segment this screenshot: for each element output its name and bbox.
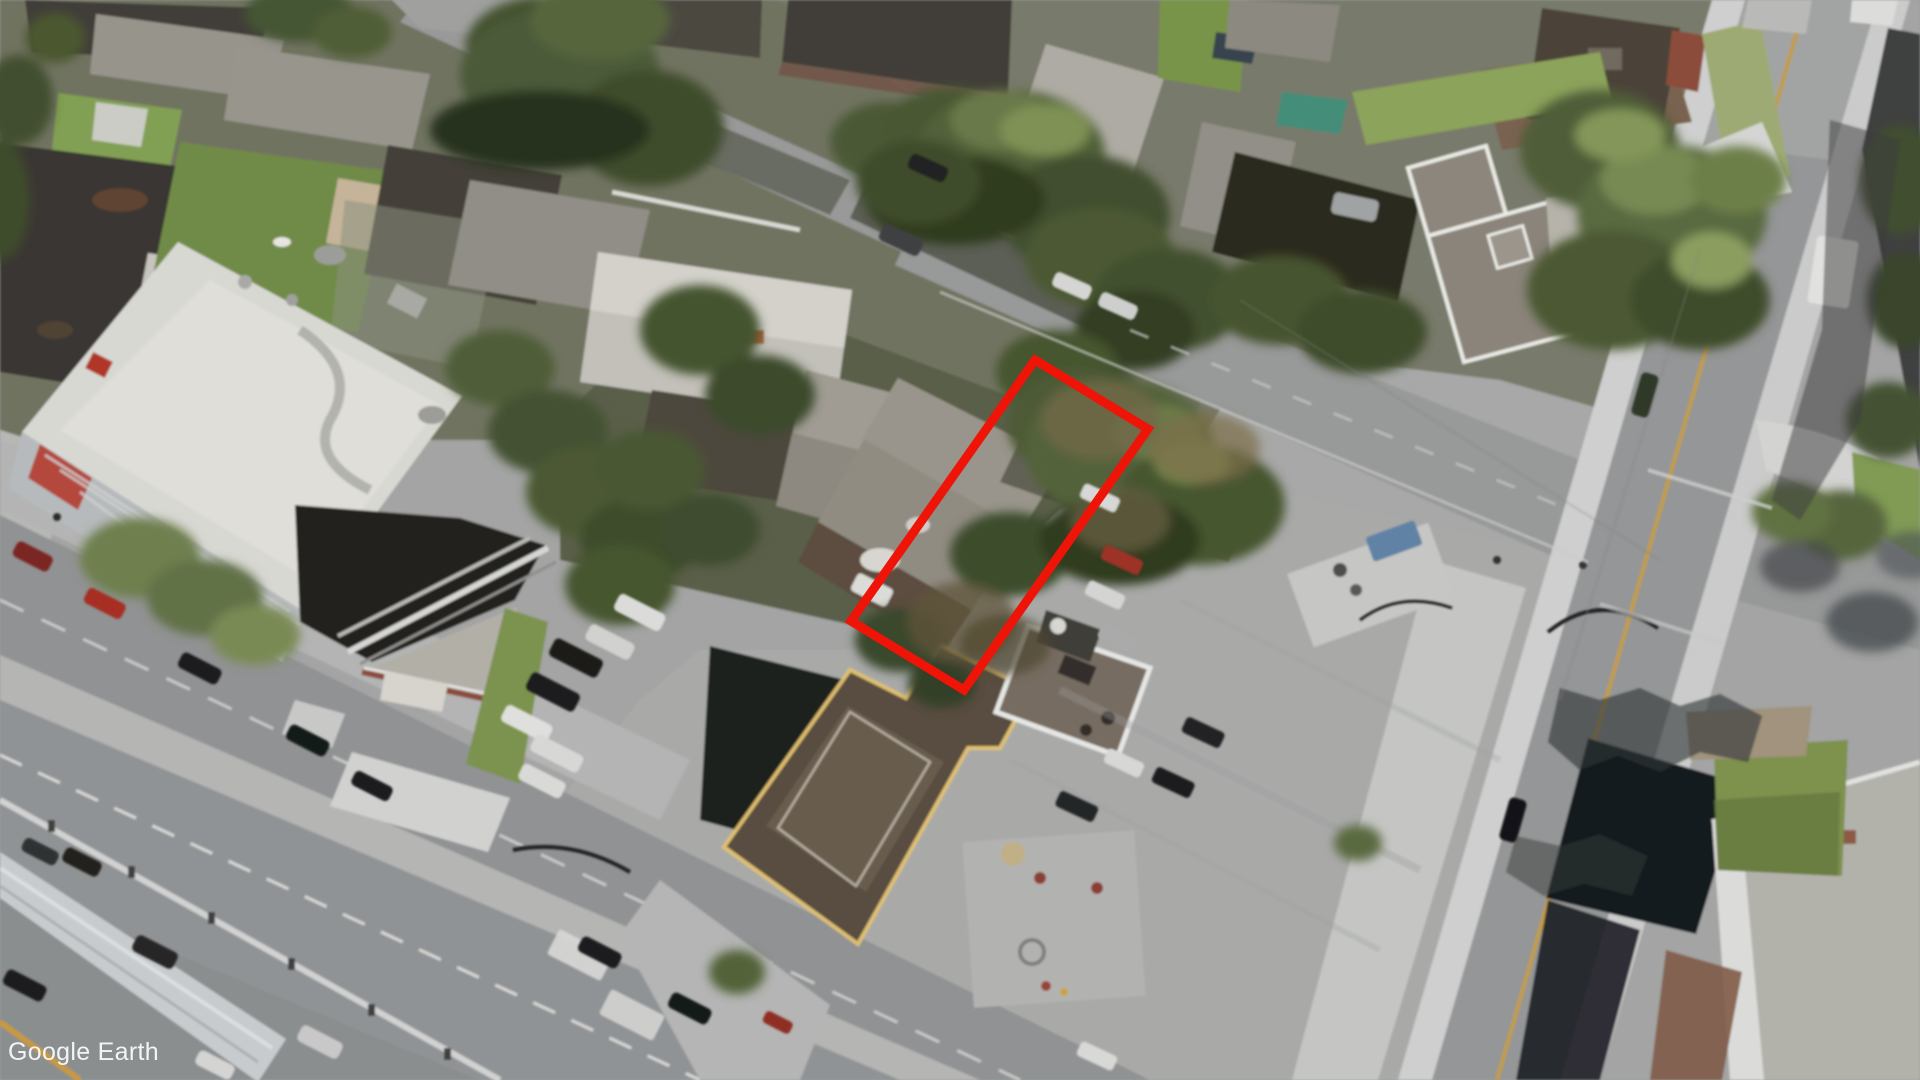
svg-text:Google Earth: Google Earth: [8, 1038, 159, 1066]
